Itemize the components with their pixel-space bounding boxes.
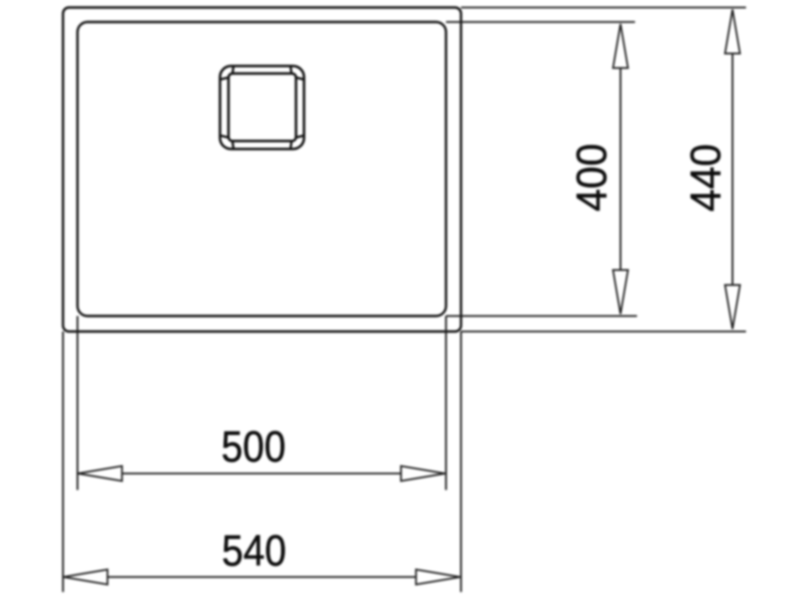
svg-text:540: 540 [222, 527, 287, 576]
svg-text:400: 400 [568, 144, 616, 212]
svg-text:500: 500 [221, 423, 286, 472]
svg-text:440: 440 [682, 144, 730, 212]
